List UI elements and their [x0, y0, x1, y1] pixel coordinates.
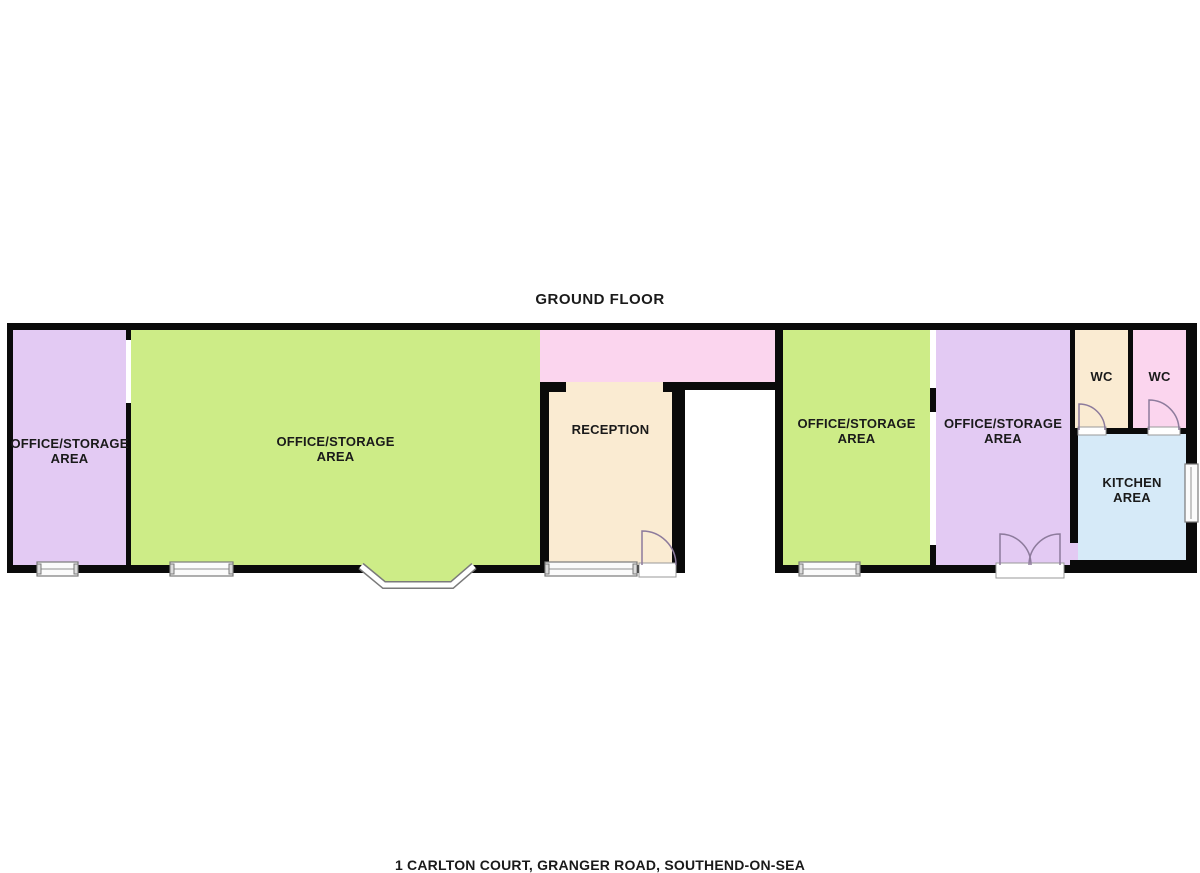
partition-opening-right-top: [930, 330, 936, 388]
room-office-storage-left: OFFICE/STORAGE AREA: [13, 330, 126, 565]
room-office-storage-right-2: OFFICE/STORAGE AREA: [936, 330, 1070, 565]
room-wc-right: WC: [1133, 330, 1186, 428]
room-label: KITCHEN AREA: [1102, 475, 1161, 506]
room-label: OFFICE/STORAGE AREA: [276, 434, 394, 465]
room-corridor: [540, 330, 775, 382]
room-label: OFFICE/STORAGE AREA: [10, 436, 128, 467]
room-label: RECEPTION: [572, 422, 650, 437]
kitchen-doorway-opening: [1070, 543, 1078, 560]
room-wc-left: WC: [1075, 330, 1128, 428]
room-label: WC: [1090, 369, 1112, 384]
wall-stub: [549, 382, 566, 392]
floorplan-page: GROUND FLOOR OFFICE/STORAGE AREA OFFICE/…: [0, 0, 1200, 873]
wall-stub: [663, 382, 672, 392]
room-kitchen: KITCHEN AREA: [1078, 434, 1186, 560]
room-label: WC: [1148, 369, 1170, 384]
plan-title: GROUND FLOOR: [0, 291, 1200, 308]
entrance-recess: [685, 390, 775, 573]
doorway-opening-left: [126, 340, 131, 403]
partition-opening-right-mid: [930, 412, 936, 545]
room-office-storage-main: OFFICE/STORAGE AREA: [131, 330, 540, 565]
room-reception: RECEPTION: [549, 382, 672, 565]
room-office-storage-right-1: OFFICE/STORAGE AREA: [783, 330, 930, 565]
room-label: OFFICE/STORAGE AREA: [944, 416, 1062, 447]
address-caption: 1 CARLTON COURT, GRANGER ROAD, SOUTHEND-…: [0, 857, 1200, 873]
room-label: OFFICE/STORAGE AREA: [797, 416, 915, 447]
